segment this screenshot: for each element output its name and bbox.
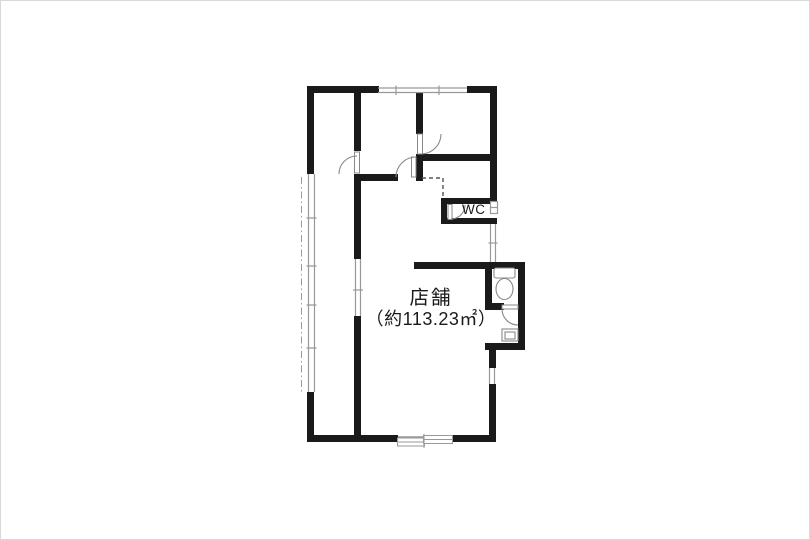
right-mid-window [489, 224, 498, 262]
right-wall-below-toilet-a [489, 350, 496, 368]
wall1-top [354, 93, 361, 151]
wall2-top [416, 93, 423, 134]
windows [302, 86, 498, 394]
left-wall-top [307, 86, 314, 174]
right-wall-below-toilet-b [489, 384, 496, 442]
wall-b-right-room-bottom [416, 154, 497, 161]
shop-room-label-group: 店舗 （約113.23㎡） [350, 289, 512, 328]
room-name: 店舗 [350, 289, 512, 309]
dashed-opening [422, 178, 443, 198]
right-wall-top [490, 86, 497, 204]
toilet-bottom-wall [485, 343, 525, 350]
right-room-door-arc [421, 134, 441, 154]
top-wall-left [307, 86, 379, 93]
left-window [307, 174, 317, 392]
floorplan-canvas: 店舗 （約113.23㎡） WC [0, 0, 810, 540]
corridor-door-leaf [355, 152, 360, 173]
left-wall-bottom [307, 392, 314, 442]
bottom-wall-left [307, 435, 398, 442]
wc-door-leaf [448, 205, 452, 220]
wall1-mid [354, 174, 361, 259]
middle-room-door-leaf [412, 157, 417, 177]
sink-icon [502, 329, 518, 341]
floorplan-drawing [1, 1, 810, 540]
entrance-sliding-door [398, 434, 454, 448]
wall-a-middle-room-bottom [354, 174, 398, 181]
room-area: （約113.23㎡） [350, 310, 512, 328]
wc-label: WC [462, 203, 492, 217]
right-room-door-leaf [418, 134, 423, 154]
wall1-bottom [354, 316, 361, 435]
right-lower-window [490, 368, 495, 384]
toilet-right-wall [518, 262, 525, 350]
